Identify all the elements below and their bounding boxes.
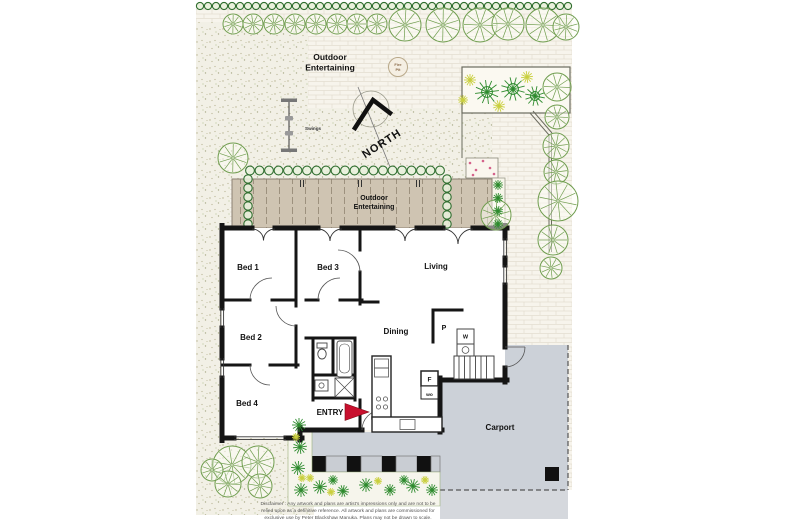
- fixture-label-fridge: F: [428, 377, 432, 384]
- tree-icon: [264, 14, 284, 34]
- tree-icon: [218, 143, 248, 173]
- room-label-bed2: Bed 2: [240, 333, 262, 342]
- tree-icon: [367, 14, 387, 34]
- fixture-label-wall-oven: wo: [425, 393, 433, 398]
- tree-icon: [492, 8, 524, 40]
- tree-icon: [223, 14, 243, 34]
- toilet-icon: [318, 349, 326, 359]
- room-label-bed1: Bed 1: [237, 263, 259, 272]
- disclaimer-line1: Disclaimer : Any artwork and plans are a…: [261, 501, 436, 507]
- hedge-icon: [246, 166, 445, 175]
- planter-wall-row: [312, 456, 440, 472]
- tree-icon: [201, 459, 223, 481]
- tree-icon: [540, 257, 562, 279]
- stairs-icon: [454, 356, 494, 379]
- room-label-living: Living: [424, 262, 448, 271]
- tree-icon: [243, 14, 263, 34]
- floor-plan-drawing: Outdoor Entertaining Fire Pit Swings NOR…: [0, 0, 790, 527]
- room-label-carport: Carport: [486, 423, 515, 432]
- backyard-label-line2: Entertaining: [305, 63, 355, 73]
- tree-icon: [285, 14, 305, 34]
- tree-icon: [553, 14, 579, 40]
- fire-pit-label-line2: Pit: [396, 67, 402, 72]
- swings-label: Swings: [305, 126, 322, 131]
- tree-icon: [545, 105, 569, 129]
- tree-icon: [389, 9, 421, 41]
- fixture-label-pantry: P: [442, 325, 447, 332]
- tree-icon: [347, 14, 367, 34]
- tree-icon: [543, 73, 571, 101]
- disclaimer-line2: relied upon as a definitive reference. A…: [261, 508, 435, 514]
- entry-path: [302, 432, 440, 456]
- carport-post: [545, 467, 559, 481]
- site-plan-page: Outdoor Entertaining Fire Pit Swings NOR…: [0, 0, 790, 527]
- room-label-dining: Dining: [384, 327, 409, 336]
- tree-icon: [242, 446, 274, 478]
- tree-icon: [538, 225, 568, 255]
- disclaimer-line3: exclusive use by Peter Blackshaw Manuka.…: [264, 515, 431, 521]
- deck-label-line1: Outdoor: [360, 195, 388, 202]
- backyard-label-line1: Outdoor: [313, 52, 347, 62]
- tree-icon: [538, 181, 578, 221]
- tree-icon: [248, 474, 272, 498]
- room-label-bed3: Bed 3: [317, 263, 339, 272]
- tree-icon: [544, 160, 568, 184]
- toilet-icon: [317, 343, 327, 348]
- disclaimer-block: Disclaimer : Any artwork and plans are a…: [261, 501, 436, 521]
- tree-icon: [426, 8, 460, 42]
- driveway: [440, 490, 568, 519]
- vanity-icon: [315, 380, 328, 391]
- tree-icon: [543, 133, 569, 159]
- fixture-label-washer: W: [463, 335, 469, 341]
- bathtub-icon: [340, 344, 350, 373]
- tree-icon: [306, 14, 326, 34]
- deck-label-line2: Entertaining: [354, 204, 395, 211]
- room-label-entry: ENTRY: [317, 408, 344, 417]
- room-label-bed4: Bed 4: [236, 399, 258, 408]
- tree-icon: [327, 14, 347, 34]
- laundry-tub-icon: [457, 344, 474, 356]
